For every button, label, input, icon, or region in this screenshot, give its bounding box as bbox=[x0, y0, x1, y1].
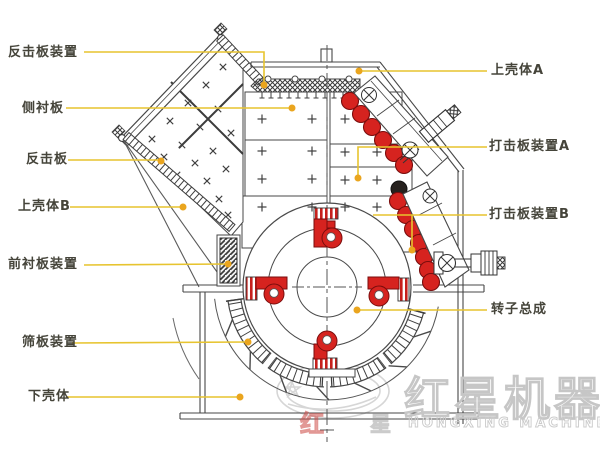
label-upper-shell-a: 上壳体A bbox=[491, 63, 544, 78]
label-blow-bar-assembly-b: 打击板装置B bbox=[489, 207, 570, 222]
leader-front-liner-assembly bbox=[84, 264, 228, 265]
label-impact-plate-assembly: 反击板装置 bbox=[8, 45, 78, 60]
lower-shell-outer-arc bbox=[173, 318, 199, 379]
label-blow-bar-assembly-a: 打击板装置A bbox=[489, 139, 570, 154]
label-side-liner: 侧衬板 bbox=[22, 101, 64, 116]
label-lower-shell: 下壳体 bbox=[28, 389, 70, 404]
brand-watermark-en: HONGXING MACHINERY bbox=[408, 416, 600, 431]
brand-ghost-char-1: 红 bbox=[300, 410, 324, 438]
impact-crusher-structure-diagram: 红星机器 HONGXING MACHINERY 红 星 反击板装置 侧衬板 反击… bbox=[0, 0, 600, 450]
brand-ghost-char-2: 星 bbox=[370, 412, 391, 436]
label-upper-shell-b: 上壳体B bbox=[18, 199, 71, 214]
label-rotor-assembly: 转子总成 bbox=[491, 302, 547, 317]
label-front-liner-assembly: 前衬板装置 bbox=[8, 257, 78, 272]
front-liner-box bbox=[217, 235, 240, 286]
impact-plate-assembly-drawing bbox=[112, 23, 264, 236]
leader-screen-plate-assembly bbox=[72, 342, 248, 343]
label-screen-plate-assembly: 筛板装置 bbox=[22, 335, 78, 350]
label-impact-plate: 反击板 bbox=[26, 152, 68, 167]
